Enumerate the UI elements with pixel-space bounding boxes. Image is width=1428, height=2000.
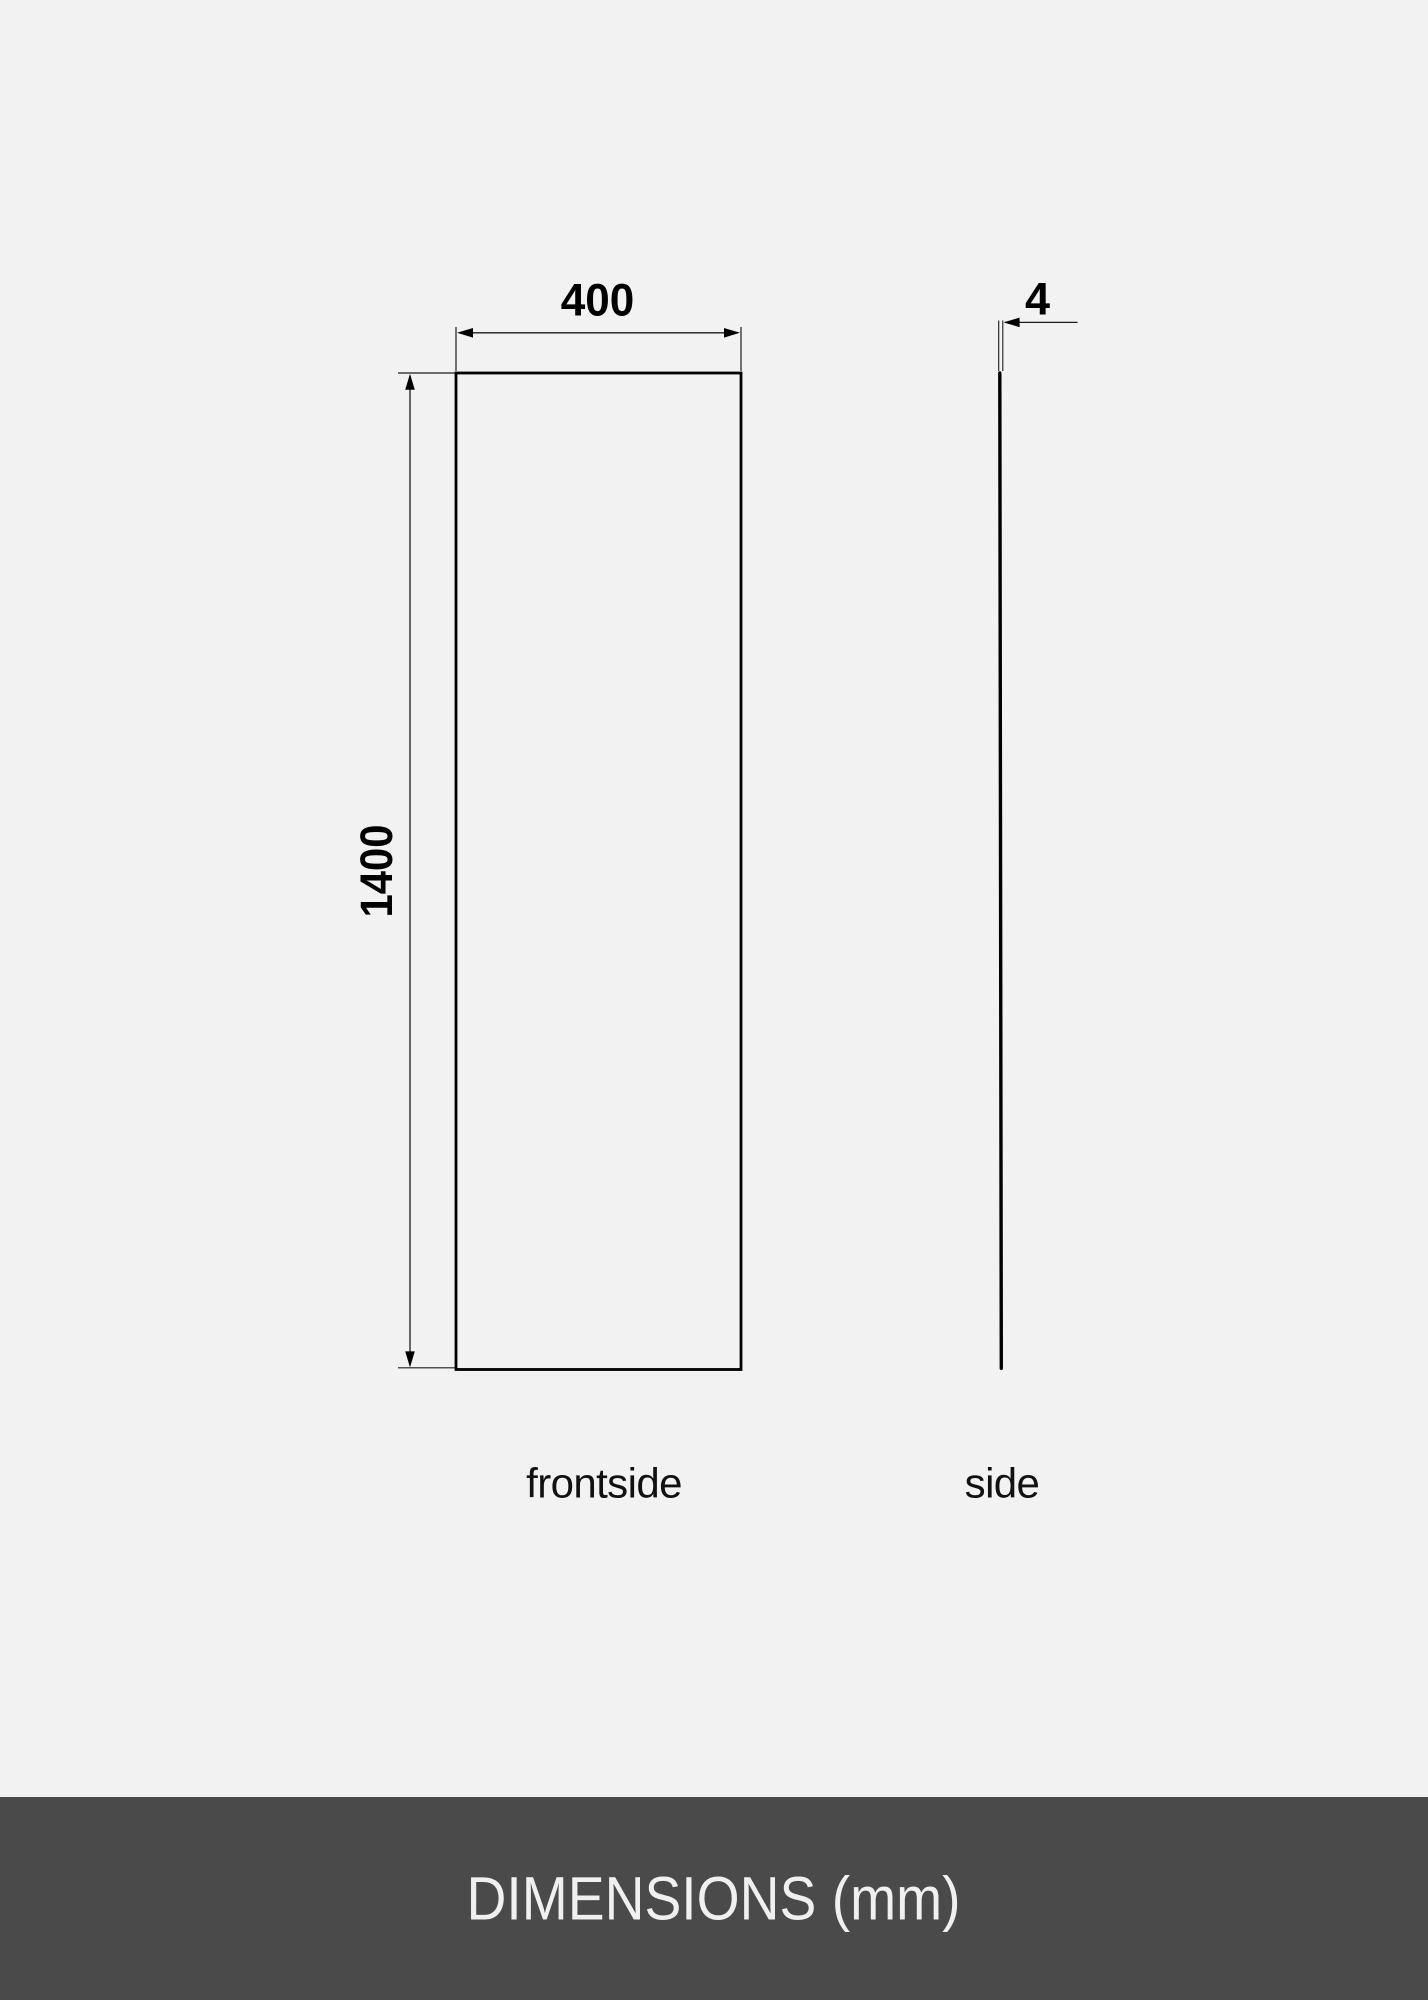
svg-text:frontside: frontside (526, 1460, 682, 1507)
svg-text:1400: 1400 (351, 825, 402, 918)
svg-text:side: side (965, 1460, 1040, 1507)
svg-text:4: 4 (1025, 274, 1050, 325)
svg-text:400: 400 (561, 275, 635, 326)
svg-text:DIMENSIONS (mm): DIMENSIONS (mm) (467, 1865, 961, 1933)
